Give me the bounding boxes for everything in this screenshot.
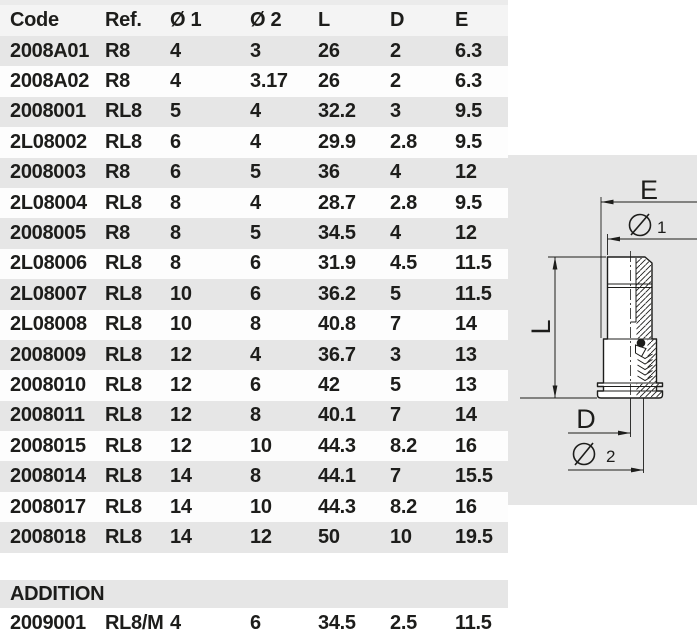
table-cell: 4 <box>170 40 250 63</box>
table-cell: 26 <box>318 70 390 93</box>
table-cell: 12 <box>455 222 508 245</box>
table-cell: 44.3 <box>318 496 390 519</box>
table-cell: 2008015 <box>10 435 105 458</box>
dimension-diameter-2 <box>568 468 644 473</box>
table-cell: 2008018 <box>10 526 105 549</box>
table-cell: 3.17 <box>250 70 318 93</box>
table-cell: RL8 <box>105 374 170 397</box>
section-hatch-middle <box>648 340 656 383</box>
table-cell: 2008017 <box>10 496 105 519</box>
table-cell: 2L08006 <box>10 252 105 275</box>
table-cell: 5 <box>250 222 318 245</box>
table-cell: 2.8 <box>390 131 455 154</box>
table-cell: 36.7 <box>318 344 390 367</box>
fitting-section-drawing: E 1 L D 2 <box>508 155 697 505</box>
table-cell: 2008003 <box>10 161 105 184</box>
table-cell: 2.8 <box>390 192 455 215</box>
table-cell: 3 <box>390 100 455 123</box>
table-cell: 8 <box>250 404 318 427</box>
table-cell: RL8 <box>105 100 170 123</box>
table-cell: RL8 <box>105 526 170 549</box>
table-cell: 2 <box>390 40 455 63</box>
table-cell: 3 <box>250 40 318 63</box>
table-cell: 4 <box>390 161 455 184</box>
table-cell: 15.5 <box>455 465 508 488</box>
table-cell: 12 <box>455 161 508 184</box>
table-cell: RL8 <box>105 496 170 519</box>
table-cell: 2.5 <box>390 612 455 635</box>
table-cell: 4 <box>250 344 318 367</box>
table-cell: 4 <box>250 100 318 123</box>
table-cell: 2008010 <box>10 374 105 397</box>
table-row: 2008010RL812642513 <box>0 370 508 400</box>
addition-section-header: ADDITION <box>0 580 508 608</box>
column-header-diameter-1: Ø 1 <box>170 9 250 32</box>
table-cell: 7 <box>390 465 455 488</box>
table-cell: 6 <box>170 161 250 184</box>
table-cell: 28.7 <box>318 192 390 215</box>
table-cell: 16 <box>455 435 508 458</box>
table-cell: 44.3 <box>318 435 390 458</box>
table-cell: 4 <box>170 612 250 635</box>
table-cell: 3 <box>390 344 455 367</box>
table-cell: 13 <box>455 374 508 397</box>
table-cell: R8 <box>105 40 170 63</box>
section-hatch-top <box>637 258 652 338</box>
column-header-code: Code <box>10 9 105 32</box>
label-e: E <box>640 175 658 205</box>
table-cell: 36.2 <box>318 283 390 306</box>
table-cell: 14 <box>455 313 508 336</box>
addition-label: ADDITION <box>10 583 104 606</box>
table-cell: 8 <box>250 313 318 336</box>
table-cell: 2L08007 <box>10 283 105 306</box>
table-row: 2008005R88534.5412 <box>0 218 508 248</box>
table-cell: 8.2 <box>390 435 455 458</box>
table-row: 2008A02R843.172626.3 <box>0 66 508 96</box>
table-cell: 7 <box>390 313 455 336</box>
table-cell: 31.9 <box>318 252 390 275</box>
table-cell: 11.5 <box>455 612 508 635</box>
table-cell: 4 <box>250 192 318 215</box>
table-cell: 6 <box>250 283 318 306</box>
table-cell: RL8 <box>105 131 170 154</box>
table-cell: 40.1 <box>318 404 390 427</box>
table-cell: 32.2 <box>318 100 390 123</box>
table-cell: 12 <box>170 344 250 367</box>
table-row: 2L08006RL88631.94.511.5 <box>0 249 508 279</box>
table-cell: 14 <box>170 496 250 519</box>
table-cell: 6 <box>170 131 250 154</box>
table-cell: RL8/M <box>105 612 170 635</box>
addition-table-body: 2009001RL8/M4634.52.511.5 <box>0 608 508 639</box>
table-cell: 10 <box>170 283 250 306</box>
dimensions-table: Code Ref. Ø 1 Ø 2 L D E 2008A01R8432626.… <box>0 5 508 553</box>
table-cell: 2008009 <box>10 344 105 367</box>
table-cell: R8 <box>105 222 170 245</box>
table-cell: 10 <box>250 496 318 519</box>
table-row: 2L08002RL86429.92.89.5 <box>0 127 508 157</box>
label-d: D <box>576 404 596 434</box>
table-cell: 11.5 <box>455 283 508 306</box>
table-cell: 8.2 <box>390 496 455 519</box>
table-row: 2008011RL812840.1714 <box>0 401 508 431</box>
table-row: 2008018RL81412501019.5 <box>0 522 508 552</box>
table-cell: RL8 <box>105 404 170 427</box>
label-diameter-2-number: 2 <box>606 447 615 466</box>
table-cell: RL8 <box>105 313 170 336</box>
table-cell: 11.5 <box>455 252 508 275</box>
table-row: 2008001RL85432.239.5 <box>0 97 508 127</box>
o-ring <box>637 339 646 348</box>
table-cell: 12 <box>170 374 250 397</box>
table-cell: 4.5 <box>390 252 455 275</box>
dimension-diameter-1 <box>608 237 697 242</box>
table-cell: 2008014 <box>10 465 105 488</box>
table-cell: RL8 <box>105 344 170 367</box>
table-cell: 2008005 <box>10 222 105 245</box>
table-cell: 2L08002 <box>10 131 105 154</box>
table-cell: RL8 <box>105 252 170 275</box>
catalog-page: Code Ref. Ø 1 Ø 2 L D E 2008A01R8432626.… <box>0 0 697 639</box>
table-cell: 7 <box>390 404 455 427</box>
table-cell: 14 <box>455 404 508 427</box>
column-header-d: D <box>390 9 455 32</box>
table-cell: 2 <box>390 70 455 93</box>
table-cell: RL8 <box>105 283 170 306</box>
table-cell: 5 <box>390 283 455 306</box>
table-cell: 19.5 <box>455 526 508 549</box>
table-cell: 2008001 <box>10 100 105 123</box>
table-cell: 5 <box>250 161 318 184</box>
table-cell: 2008A02 <box>10 70 105 93</box>
table-cell: 2008A01 <box>10 40 105 63</box>
table-cell: 9.5 <box>455 100 508 123</box>
table-cell: 8 <box>250 465 318 488</box>
table-cell: 12 <box>170 404 250 427</box>
table-cell: 6 <box>250 374 318 397</box>
label-l: L <box>526 319 556 334</box>
table-cell: 4 <box>390 222 455 245</box>
table-cell: 14 <box>170 526 250 549</box>
table-cell: 4 <box>250 131 318 154</box>
table-header-row: Code Ref. Ø 1 Ø 2 L D E <box>0 5 508 36</box>
table-cell: 5 <box>170 100 250 123</box>
label-diameter-1-number: 1 <box>657 218 666 237</box>
table-cell: 5 <box>390 374 455 397</box>
column-header-length: L <box>318 9 390 32</box>
table-cell: 36 <box>318 161 390 184</box>
table-row: 2L08008RL810840.8714 <box>0 310 508 340</box>
table-cell: 6 <box>250 612 318 635</box>
table-cell: 8 <box>170 192 250 215</box>
table-cell: 16 <box>455 496 508 519</box>
table-cell: 6.3 <box>455 70 508 93</box>
table-row: 2008009RL812436.7313 <box>0 340 508 370</box>
table-body: 2008A01R8432626.32008A02R843.172626.3200… <box>0 36 508 553</box>
table-cell: 9.5 <box>455 192 508 215</box>
technical-drawing-panel: E 1 L D 2 <box>508 155 697 505</box>
diameter-2-symbol <box>574 443 595 465</box>
table-cell: 4 <box>170 70 250 93</box>
table-row: 2008015RL8121044.38.216 <box>0 431 508 461</box>
column-header-diameter-2: Ø 2 <box>250 9 318 32</box>
table-row: 2008014RL814844.1715.5 <box>0 461 508 491</box>
table-cell: 9.5 <box>455 131 508 154</box>
table-cell: 42 <box>318 374 390 397</box>
table-cell: 29.9 <box>318 131 390 154</box>
table-row: 2008017RL8141044.38.216 <box>0 492 508 522</box>
table-cell: 50 <box>318 526 390 549</box>
table-row: 2008A01R8432626.3 <box>0 36 508 66</box>
table-row: 2009001RL8/M4634.52.511.5 <box>0 608 508 639</box>
table-cell: 10 <box>250 435 318 458</box>
table-cell: 2L08008 <box>10 313 105 336</box>
table-cell: R8 <box>105 161 170 184</box>
table-cell: 26 <box>318 40 390 63</box>
table-cell: 6.3 <box>455 40 508 63</box>
table-row: 2L08004RL88428.72.89.5 <box>0 188 508 218</box>
table-cell: 12 <box>170 435 250 458</box>
table-row: 2L08007RL810636.2511.5 <box>0 279 508 309</box>
table-cell: 2009001 <box>10 612 105 635</box>
table-cell: 2008011 <box>10 404 105 427</box>
diameter-1-symbol <box>630 214 651 236</box>
table-cell: RL8 <box>105 192 170 215</box>
table-cell: 13 <box>455 344 508 367</box>
table-cell: 8 <box>170 222 250 245</box>
table-cell: RL8 <box>105 465 170 488</box>
table-cell: RL8 <box>105 435 170 458</box>
table-cell: 10 <box>390 526 455 549</box>
column-header-e: E <box>455 9 508 32</box>
table-cell: 34.5 <box>318 612 390 635</box>
table-cell: 44.1 <box>318 465 390 488</box>
table-cell: 2L08004 <box>10 192 105 215</box>
table-cell: 12 <box>250 526 318 549</box>
column-header-ref: Ref. <box>105 9 170 32</box>
table-cell: 40.8 <box>318 313 390 336</box>
table-cell: 14 <box>170 465 250 488</box>
table-row: 2008003R86536412 <box>0 158 508 188</box>
table-cell: 10 <box>170 313 250 336</box>
table-cell: 34.5 <box>318 222 390 245</box>
table-cell: 6 <box>250 252 318 275</box>
table-cell: 8 <box>170 252 250 275</box>
table-cell: R8 <box>105 70 170 93</box>
